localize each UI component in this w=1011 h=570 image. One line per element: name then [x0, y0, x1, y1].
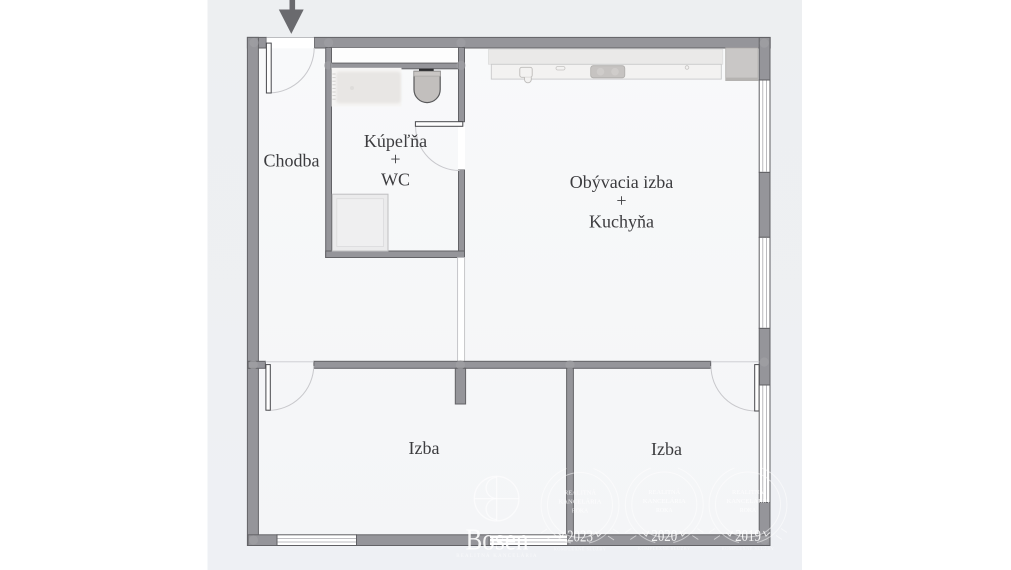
svg-text:2019: 2019 [735, 526, 761, 545]
svg-text:Chodba: Chodba [264, 151, 320, 171]
svg-text:ROKA: ROKA [572, 509, 589, 515]
svg-text:+: + [390, 149, 400, 169]
svg-text:KOMPLEXNÉ SLUŽBY: KOMPLEXNÉ SLUŽBY [638, 546, 691, 551]
svg-text:Bosen: Bosen [466, 522, 529, 557]
svg-text:KANCELÁRIA: KANCELÁRIA [559, 498, 603, 506]
svg-text:Kúpeľňa: Kúpeľňa [364, 131, 427, 151]
svg-text:KANCELÁRIA: KANCELÁRIA [643, 497, 687, 505]
svg-text:KANCELÁRIA: KANCELÁRIA [727, 497, 771, 505]
svg-text:REALITNÁ: REALITNÁ [648, 488, 681, 496]
svg-text:Kuchyňa: Kuchyňa [589, 212, 654, 232]
svg-text:WC: WC [381, 170, 410, 190]
svg-text:Obývacia izba: Obývacia izba [570, 172, 673, 192]
svg-text:KOMPLEXNÉ SLUŽBY: KOMPLEXNÉ SLUŽBY [722, 546, 775, 551]
svg-text:REALITNÁ KANCELÁRIA: REALITNÁ KANCELÁRIA [456, 553, 538, 559]
svg-text:ROKA: ROKA [656, 508, 673, 514]
svg-text:2020: 2020 [651, 526, 677, 545]
svg-text:2023: 2023 [567, 527, 593, 546]
svg-text:REALITNÁ: REALITNÁ [564, 489, 597, 497]
svg-text:Izba: Izba [409, 438, 440, 458]
svg-text:REALITNÁ: REALITNÁ [732, 488, 765, 496]
svg-text:KOMPLEXNÉ SLUŽBY: KOMPLEXNÉ SLUŽBY [554, 547, 607, 552]
svg-text:ROKA: ROKA [740, 508, 757, 514]
svg-text:+: + [616, 191, 626, 211]
svg-text:Izba: Izba [651, 439, 682, 459]
